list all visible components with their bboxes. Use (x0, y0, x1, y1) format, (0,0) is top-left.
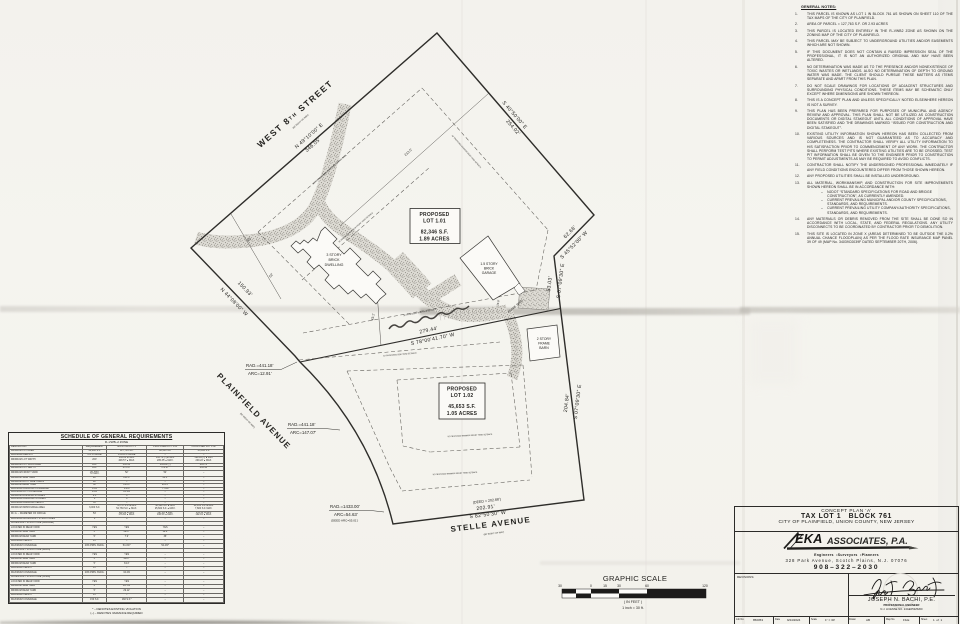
svg-text:BARN: BARN (539, 346, 549, 350)
svg-text:3 STORY: 3 STORY (326, 253, 342, 257)
svg-text:( IN FEET ): ( IN FEET ) (624, 600, 642, 604)
svg-text:RAD.=1433.00’: RAD.=1433.00’ (330, 504, 360, 509)
svg-text:1.5 STORY: 1.5 STORY (480, 262, 498, 266)
svg-text:53.03’: 53.03’ (546, 276, 554, 292)
svg-text:DWELLING: DWELLING (325, 263, 344, 267)
svg-text:WEST 8TH STREET: WEST 8TH STREET (255, 78, 335, 150)
svg-text:30: 30 (558, 584, 562, 588)
svg-text:50’ PROPOSED MINIMUM REAR YARD: 50’ PROPOSED MINIMUM REAR YARD SETBACK (451, 134, 483, 169)
svg-text:150.93’: 150.93’ (236, 280, 253, 298)
svg-text:(DEED ARC=55.01’): (DEED ARC=55.01’) (331, 519, 358, 523)
svg-text:GARAGE: GARAGE (482, 271, 497, 275)
svg-text:30: 30 (617, 584, 621, 588)
svg-text:50’ PROPOSED MINIMUM FRONT YAR: 50’ PROPOSED MINIMUM FRONT YARD SETBACK (448, 433, 494, 438)
svg-text:GRAPHIC SCALE: GRAPHIC SCALE (603, 574, 667, 583)
svg-text:S 07°09’30” E: S 07°09’30” E (556, 263, 566, 299)
svg-text:60: 60 (645, 584, 649, 588)
svg-text:19.8’: 19.8’ (495, 299, 500, 306)
svg-text:213.5’: 213.5’ (404, 148, 414, 157)
svg-text:BRICK: BRICK (329, 258, 341, 262)
svg-text:RAD.=441.18’: RAD.=441.18’ (288, 422, 315, 427)
svg-text:FRAME: FRAME (538, 342, 551, 346)
svg-text:BRICK: BRICK (484, 267, 495, 271)
svg-text:82,346 S.F.: 82,346 S.F. (421, 230, 449, 236)
svg-text:ARC=54.63’: ARC=54.63’ (334, 512, 358, 517)
svg-text:(60’ RIGHT OF WAY): (60’ RIGHT OF WAY) (483, 531, 504, 537)
svg-text:204.84’: 204.84’ (563, 393, 571, 412)
svg-text:ARC=12.91’: ARC=12.91’ (248, 371, 272, 376)
svg-text:45,653 S.F.: 45,653 S.F. (448, 404, 476, 410)
svg-text:30’ PROPOSED SIDE YARD SETBACK: 30’ PROPOSED SIDE YARD SETBACK (383, 351, 417, 357)
svg-text:2 STORY: 2 STORY (537, 337, 552, 341)
svg-text:LOT 1.02: LOT 1.02 (451, 393, 474, 399)
svg-text:1 inch = 30 ft.: 1 inch = 30 ft. (622, 606, 644, 610)
svg-text:RAD.=441.18’: RAD.=441.18’ (246, 363, 273, 368)
svg-text:PROPOSED: PROPOSED (420, 212, 450, 218)
svg-text:PLAINFIELD AVENUE: PLAINFIELD AVENUE (215, 371, 292, 451)
svg-text:120: 120 (702, 584, 708, 588)
svg-text:(DEED = 202.88’): (DEED = 202.88’) (473, 497, 502, 505)
svg-text:S 07°09’30” E: S 07°09’30” E (573, 384, 583, 420)
svg-text:52’: 52’ (268, 272, 274, 278)
svg-text:15: 15 (603, 584, 607, 588)
svg-text:1.89 ACRES: 1.89 ACRES (419, 237, 450, 243)
svg-text:ARC=147.07’: ARC=147.07’ (290, 430, 316, 435)
svg-text:PROPOSED: PROPOSED (447, 387, 477, 393)
svg-text:1.05 ACRES: 1.05 ACRES (447, 411, 478, 417)
svg-text:30’ PROPOSED MINIMUM FRONT YAR: 30’ PROPOSED MINIMUM FRONT YARD SETBACK (433, 471, 479, 476)
svg-text:STELLE AVENUE: STELLE AVENUE (450, 515, 531, 534)
svg-text:30’ PROPOSED SIDE YARD SETBACK: 30’ PROPOSED SIDE YARD SETBACK (403, 308, 437, 317)
svg-text:LOT 1.01: LOT 1.01 (423, 219, 446, 225)
svg-text:62.68’: 62.68’ (563, 225, 578, 240)
svg-text:0: 0 (590, 584, 592, 588)
